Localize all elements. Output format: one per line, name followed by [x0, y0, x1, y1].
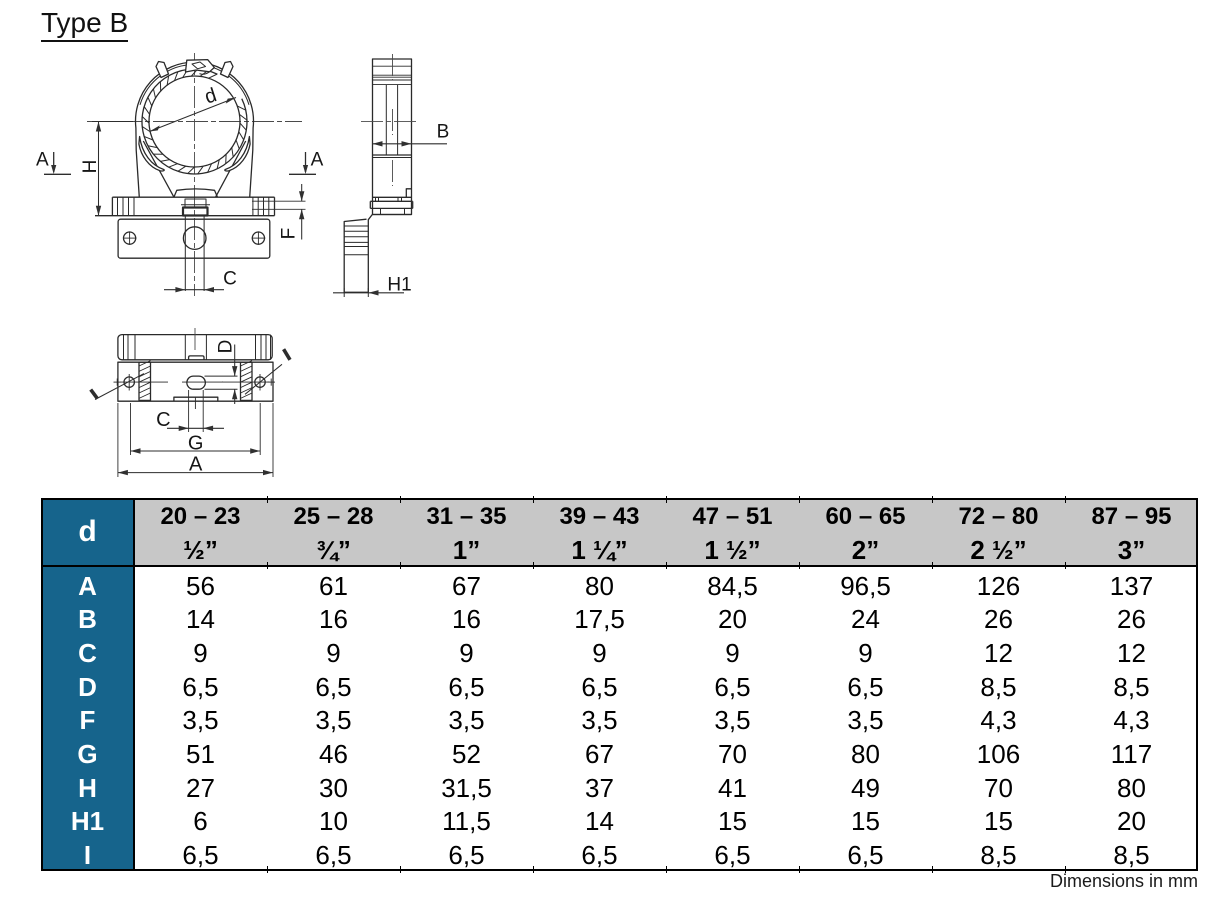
svg-text:G: G	[188, 433, 204, 455]
svg-text:A: A	[189, 453, 203, 475]
svg-text:A: A	[311, 150, 324, 171]
svg-text:H1: H1	[387, 274, 411, 295]
svg-text:F: F	[279, 228, 300, 240]
svg-text:B: B	[437, 122, 450, 143]
svg-text:D: D	[216, 340, 237, 354]
svg-text:C: C	[223, 269, 237, 290]
svg-text:H: H	[80, 160, 101, 174]
svg-text:C: C	[156, 409, 170, 431]
svg-text:A: A	[36, 150, 49, 171]
svg-text:d: d	[202, 84, 219, 108]
